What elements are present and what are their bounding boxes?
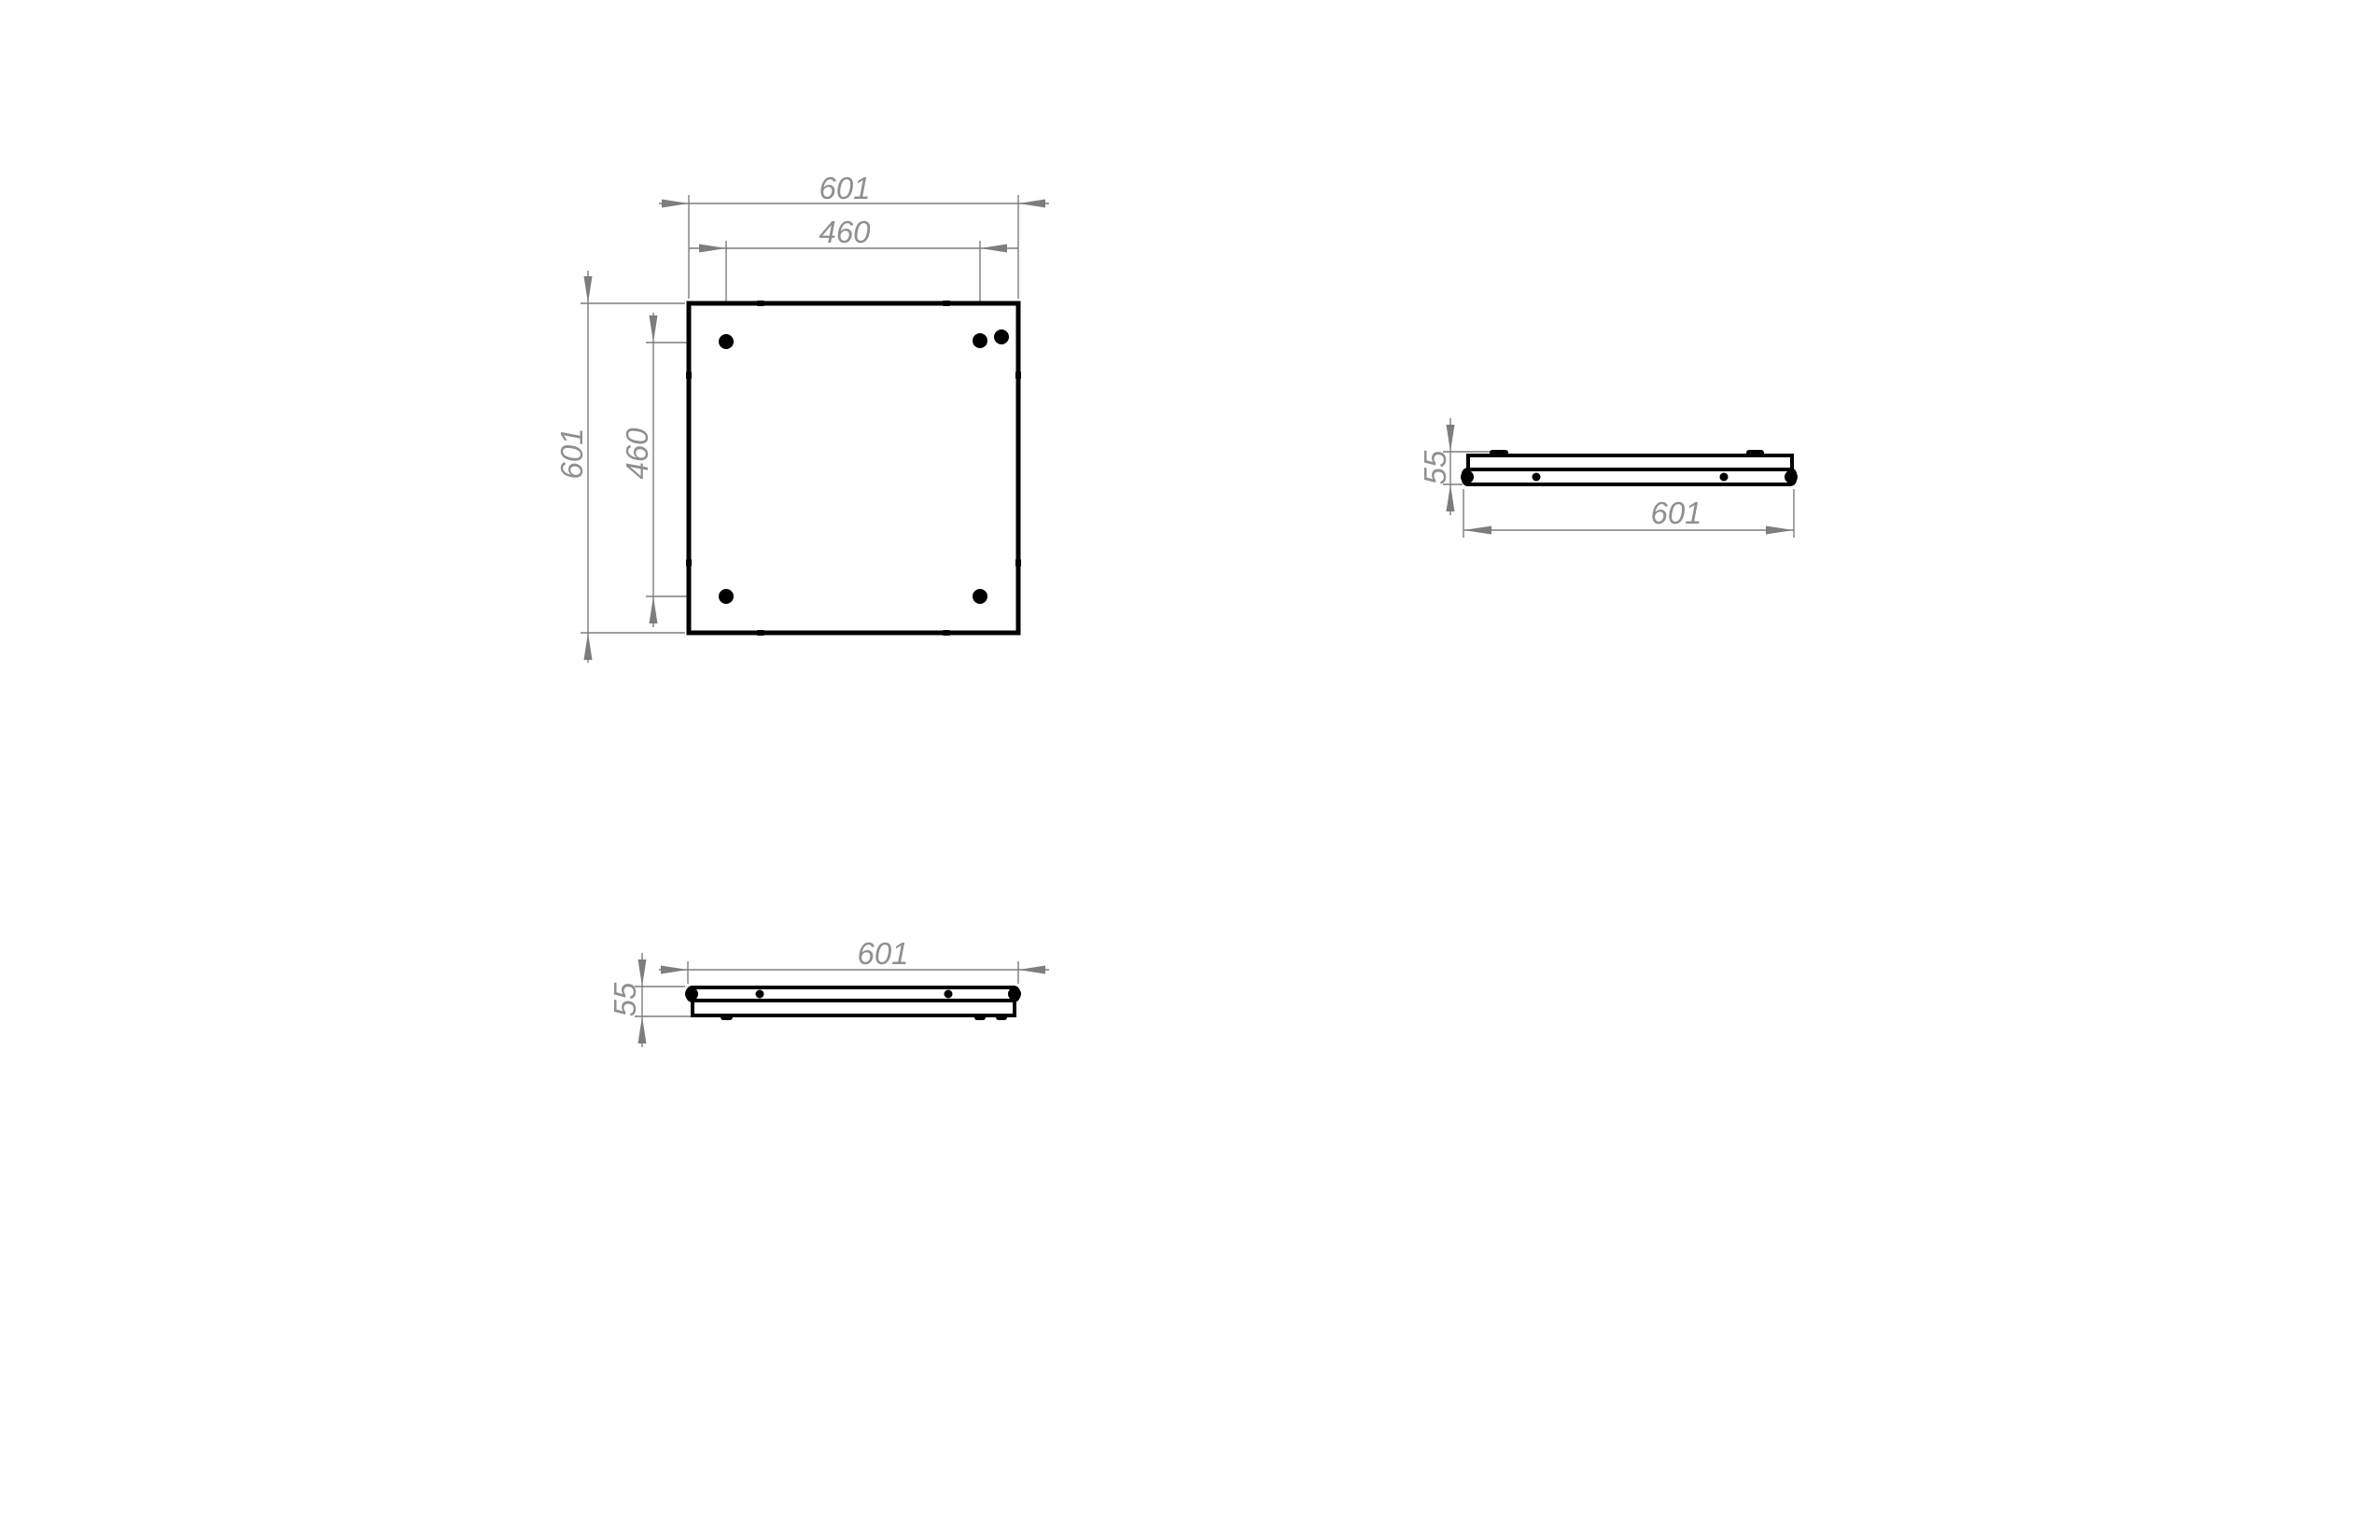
clip-tick [943,630,950,636]
fastener-dot [1720,473,1729,482]
mounting-hole [994,329,1009,344]
profile-upper-band [1468,455,1792,469]
profile-lower-band [1463,469,1795,484]
dim-label: 601 [857,936,908,971]
mounting-hole [973,589,987,604]
side-view: 55 601 [1418,418,1798,538]
dim-label: 601 [1650,496,1701,530]
technical-drawing: 601 460 601 460 [0,0,2380,1540]
arrowhead [1018,966,1045,974]
arrowhead [1447,425,1455,452]
clip-tick [757,301,764,306]
mounting-hole [973,333,987,348]
dim-label: 601 [819,171,870,205]
top-view: 601 460 601 460 [554,171,1049,663]
front-view: 601 55 [608,936,1049,1047]
profile-lower-band [693,1001,1015,1015]
dim-label: 460 [819,215,871,249]
arrowhead [1463,526,1491,535]
arrowhead [662,200,689,208]
dim-label: 460 [620,427,654,480]
mounting-hole [719,589,734,604]
dim-label: 601 [554,427,589,479]
arrowhead [1766,526,1794,535]
dim-front-outer-width: 601 [659,936,1049,984]
arrowhead [1018,200,1045,208]
fastener-dot [756,990,764,999]
dim-label: 55 [608,982,642,1016]
arrowhead [699,245,726,253]
panel-outline [689,303,1018,633]
fastener-dot [1533,473,1541,482]
fastener-dot [945,990,953,999]
dim-side-outer-width: 601 [1463,489,1794,538]
arrowhead [638,1016,647,1043]
arrowhead [650,315,658,343]
end-cap [685,987,698,1001]
mounting-hole [719,334,734,349]
end-cap [1785,470,1798,483]
dim-front-thickness: 55 [608,953,691,1047]
profile-upper-band [688,987,1018,1001]
clip-tick [757,630,764,636]
arrowhead [980,245,1007,253]
clip-tick [1015,559,1021,567]
clip-tick [1015,371,1021,379]
clip-tick [943,301,950,306]
clip-tick [686,371,692,379]
arrowhead [1447,484,1455,511]
drawing-sheet: 601 460 601 460 [0,0,2380,1540]
arrowhead [584,276,593,303]
end-cap [1008,987,1021,1001]
clip-tick [686,559,692,567]
arrowhead [584,633,593,660]
arrowhead [650,596,658,623]
arrowhead [661,966,688,974]
end-cap [1461,470,1474,483]
dim-label: 55 [1418,450,1452,484]
